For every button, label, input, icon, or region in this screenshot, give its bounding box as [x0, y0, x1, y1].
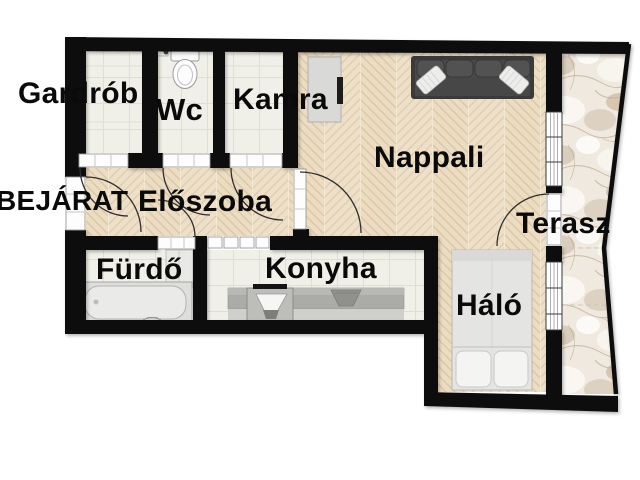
- kamra-door-threshold: [230, 154, 282, 167]
- room-label-furdo: Fürdő: [96, 255, 182, 285]
- room-label-gardrob: Gardrób: [18, 79, 138, 109]
- room-label-nappali: Nappali: [374, 143, 484, 173]
- wall-nappali-door-post: [293, 229, 309, 238]
- pillow: [494, 351, 528, 387]
- window-nappali-terasz: [546, 112, 562, 186]
- nappali-door-threshold: [294, 169, 306, 229]
- room-label-eloszoba: Előszoba: [138, 187, 272, 217]
- window-halo-terasz: [546, 262, 562, 330]
- tv-icon: [337, 77, 343, 104]
- entrance-label: BEJÁRAT: [0, 187, 128, 215]
- room-label-wc: Wc: [156, 94, 203, 125]
- wall-bottom-right: [424, 392, 618, 412]
- wall-window-post-mid: [546, 246, 562, 262]
- konyha-cabinet-2: [224, 237, 238, 248]
- kitchen-sink: [247, 284, 293, 322]
- wall-window-top: [546, 42, 562, 112]
- furdo-door-threshold: [158, 237, 195, 249]
- room-label-terasz: Terasz: [516, 209, 611, 239]
- wall-bottom-left: [65, 320, 438, 334]
- konyha-cabinet-4: [256, 237, 269, 248]
- floor-plan-svg: [0, 0, 640, 480]
- wall-wc-kamra: [213, 44, 225, 168]
- kitchen-counter: [228, 284, 404, 322]
- floor-plan-page: Gardrób Wc Kamra Nappali Terasz Előszoba…: [0, 0, 640, 480]
- wall-konyha-right: [424, 236, 438, 334]
- wall-window-post-small: [546, 186, 562, 193]
- konyha-cabinet-1: [208, 237, 222, 248]
- wall-toprooms-1: [128, 153, 163, 168]
- pillow: [456, 351, 491, 387]
- gardrob-door-threshold: [79, 154, 128, 167]
- wall-toprooms-3: [282, 153, 298, 168]
- sofa: [411, 56, 534, 99]
- wall-furdo-konyha: [193, 236, 207, 334]
- wall-hall-bottom-1: [65, 236, 158, 250]
- wall-window-bottom: [546, 330, 562, 396]
- wc-door-threshold: [163, 154, 210, 167]
- konyha-cabinet-3: [240, 237, 254, 248]
- wall-toprooms-2: [210, 153, 230, 168]
- wall-hall-bottom-3: [270, 236, 438, 250]
- room-label-kamra: Kamra: [233, 85, 328, 115]
- room-label-halo: Háló: [456, 291, 522, 321]
- room-label-konyha: Konyha: [265, 254, 377, 284]
